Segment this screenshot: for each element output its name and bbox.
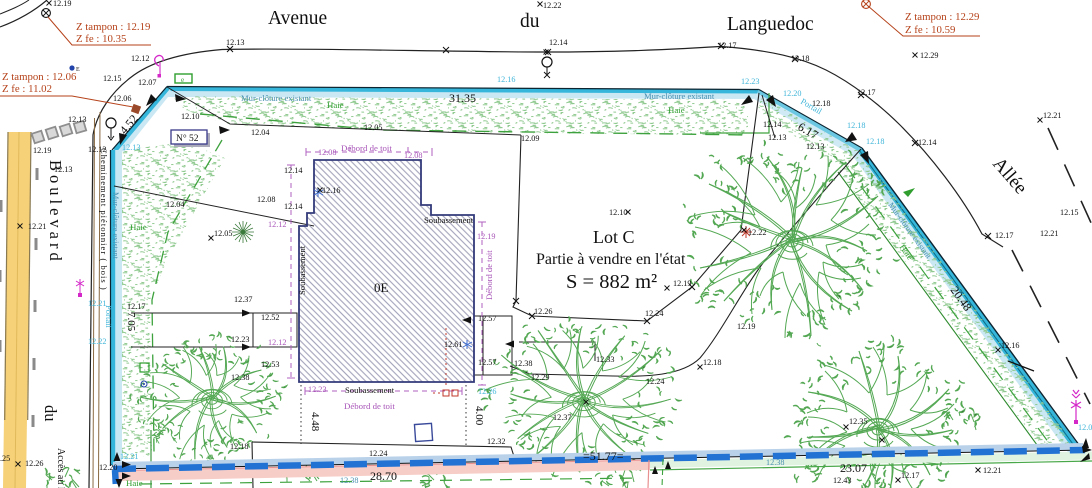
svg-text:S = 882 m²: S = 882 m² [566,271,657,293]
svg-text:12.26: 12.26 [25,459,43,468]
svg-text:E: E [76,67,80,73]
svg-text:=51.77=: =51.77= [583,449,624,463]
svg-text:12.18: 12.18 [230,442,248,451]
svg-text:12.08: 12.08 [404,151,422,160]
svg-text:12.17: 12.17 [127,302,145,311]
svg-text:Partie à vendre en l'état: Partie à vendre en l'état [536,251,686,268]
svg-text:12.17: 12.17 [995,231,1013,240]
svg-text:12.15: 12.15 [103,74,121,83]
svg-text:12.05: 12.05 [364,123,382,132]
svg-text:12.12: 12.12 [268,338,286,347]
svg-text:12.37: 12.37 [234,295,252,304]
svg-text:12.14: 12.14 [763,120,781,129]
svg-text:12.38: 12.38 [766,458,784,467]
svg-text:12.12: 12.12 [131,54,149,63]
svg-text:12.24: 12.24 [646,377,664,386]
svg-text:Soubassement: Soubassement [424,215,474,225]
svg-text:12.10: 12.10 [181,112,199,121]
svg-text:12.12: 12.12 [268,220,286,229]
svg-text:12.38: 12.38 [514,359,532,368]
svg-text:du: du [520,11,540,32]
svg-text:12.52: 12.52 [261,313,279,322]
svg-text:12.21: 12.21 [983,466,1001,475]
svg-text:28.70: 28.70 [370,469,397,483]
svg-text:Cheminement piétonnier ( bois: Cheminement piétonnier ( bois ) [99,148,109,291]
svg-text:Débord de toit: Débord de toit [344,401,395,411]
svg-text:12.05: 12.05 [214,229,232,238]
svg-text:.25: .25 [0,454,10,463]
svg-text:12.61: 12.61 [444,340,462,349]
svg-text:12.21: 12.21 [1043,111,1061,120]
svg-text:12.21: 12.21 [120,452,138,461]
svg-text:12.53: 12.53 [261,360,279,369]
svg-text:Z tampon : 12.06: Z tampon : 12.06 [2,71,77,83]
svg-text:23.07: 23.07 [840,461,867,475]
svg-text:Z fe : 10.35: Z fe : 10.35 [76,33,126,45]
svg-text:Mur-clôture existant: Mur-clôture existant [241,93,312,103]
svg-text:Mur-clôture existant: Mur-clôture existant [644,91,715,101]
svg-text:12.09: 12.09 [521,134,539,143]
svg-text:12.18: 12.18 [847,121,865,130]
svg-text:12.21: 12.21 [88,299,106,308]
svg-text:12.17: 12.17 [718,41,736,50]
svg-text:12.18: 12.18 [812,99,830,108]
svg-text:Avenue: Avenue [268,8,327,29]
svg-text:12.13: 12.13 [768,133,786,142]
svg-text:12.18: 12.18 [703,358,721,367]
svg-text:12.29: 12.29 [920,51,938,60]
svg-text:12.13: 12.13 [226,38,244,47]
svg-text:12.14: 12.14 [284,166,302,175]
svg-text:12.38: 12.38 [340,476,358,485]
svg-text:12.20: 12.20 [99,463,117,472]
svg-text:12.16: 12.16 [497,75,515,84]
svg-text:12.23: 12.23 [741,77,759,86]
svg-text:12.14: 12.14 [918,138,936,147]
svg-text:12.22: 12.22 [748,228,766,237]
svg-text:12.20: 12.20 [783,89,801,98]
svg-text:Z fe : 11.02: Z fe : 11.02 [2,83,52,95]
svg-text:e: e [181,76,184,84]
svg-text:Haie: Haie [327,100,344,110]
svg-text:12.29: 12.29 [531,373,549,382]
svg-text:12.06: 12.06 [113,94,131,103]
svg-text:12.21: 12.21 [1040,229,1058,238]
svg-text:Languedoc: Languedoc [727,14,814,35]
svg-text:12.12: 12.12 [88,145,106,154]
svg-text:12.14: 12.14 [284,202,302,211]
svg-text:12.13: 12.13 [806,142,824,151]
svg-text:12.38: 12.38 [231,373,249,382]
svg-text:12.17: 12.17 [857,88,875,97]
svg-text:12.18: 12.18 [866,137,884,146]
svg-text:Soubassement: Soubassement [297,245,307,295]
svg-text:Portail: Portail [104,305,114,329]
svg-text:12.19: 12.19 [737,322,755,331]
svg-text:Haie: Haie [130,222,147,232]
svg-text:du: du [41,405,60,422]
svg-text:31.35: 31.35 [449,91,476,105]
svg-text:12.17: 12.17 [901,471,919,480]
svg-text:12.26: 12.26 [534,307,552,316]
svg-text:12.0: 12.0 [1078,423,1092,432]
svg-text:4.48: 4.48 [309,412,321,432]
svg-text:Accès au lot: Accès au lot [55,448,66,488]
svg-text:12.22: 12.22 [88,337,106,346]
svg-text:4.00: 4.00 [473,406,485,426]
svg-text:12.23: 12.23 [231,335,249,344]
svg-text:12.16: 12.16 [1001,341,1019,350]
svg-text:Z tampon : 12.29: Z tampon : 12.29 [905,11,979,23]
svg-text:12.07: 12.07 [138,78,156,87]
svg-text:12.32: 12.32 [487,437,505,446]
svg-text:12.08: 12.08 [257,195,275,204]
svg-text:12.08: 12.08 [318,148,336,157]
svg-text:0E: 0E [374,280,389,295]
svg-text:Soubassement: Soubassement [345,385,395,395]
svg-text:12.19: 12.19 [53,0,71,8]
svg-text:12.24: 12.24 [645,309,663,318]
svg-text:Boulevard: Boulevard [46,160,65,265]
svg-text:Haie: Haie [126,478,143,488]
svg-text:7.05: 7.05 [125,312,137,332]
svg-text:12.14: 12.14 [549,38,567,47]
svg-text:12.10: 12.10 [609,208,627,217]
svg-text:N° 52: N° 52 [176,133,199,144]
svg-text:12.57: 12.57 [478,358,496,367]
svg-text:12.19: 12.19 [477,232,495,241]
svg-text:Mur-clôture existant: Mur-clôture existant [111,192,120,260]
svg-text:Lot C: Lot C [593,227,635,247]
svg-text:12.26: 12.26 [478,387,496,396]
svg-text:12.19: 12.19 [33,146,51,155]
svg-text:12.18: 12.18 [791,54,809,63]
svg-text:12.13: 12.13 [54,165,72,174]
svg-text:12.22: 12.22 [543,1,561,10]
svg-text:12.37: 12.37 [553,413,571,422]
svg-text:Débord de toit: Débord de toit [341,143,392,153]
svg-text:12.21: 12.21 [28,222,46,231]
svg-text:12.15: 12.15 [1060,208,1078,217]
svg-text:12.57: 12.57 [478,314,496,323]
svg-text:12.13: 12.13 [122,143,140,152]
svg-text:12.13: 12.13 [68,115,86,124]
svg-text:12.04: 12.04 [251,128,269,137]
svg-text:Haie: Haie [668,105,685,115]
svg-text:12.35: 12.35 [849,417,867,426]
svg-text:12.04: 12.04 [166,200,184,209]
svg-text:Z tampon : 12.19: Z tampon : 12.19 [76,21,150,33]
svg-text:12.23: 12.23 [308,385,326,394]
svg-text:12.24: 12.24 [369,449,387,458]
svg-text:12.16: 12.16 [322,186,340,195]
svg-text:12.19: 12.19 [673,279,691,288]
svg-text:12.43: 12.43 [833,476,851,485]
svg-text:12.33: 12.33 [596,355,614,364]
svg-text:Z fe : 10.59: Z fe : 10.59 [905,24,955,36]
svg-text:Débord de toit: Débord de toit [484,250,494,300]
